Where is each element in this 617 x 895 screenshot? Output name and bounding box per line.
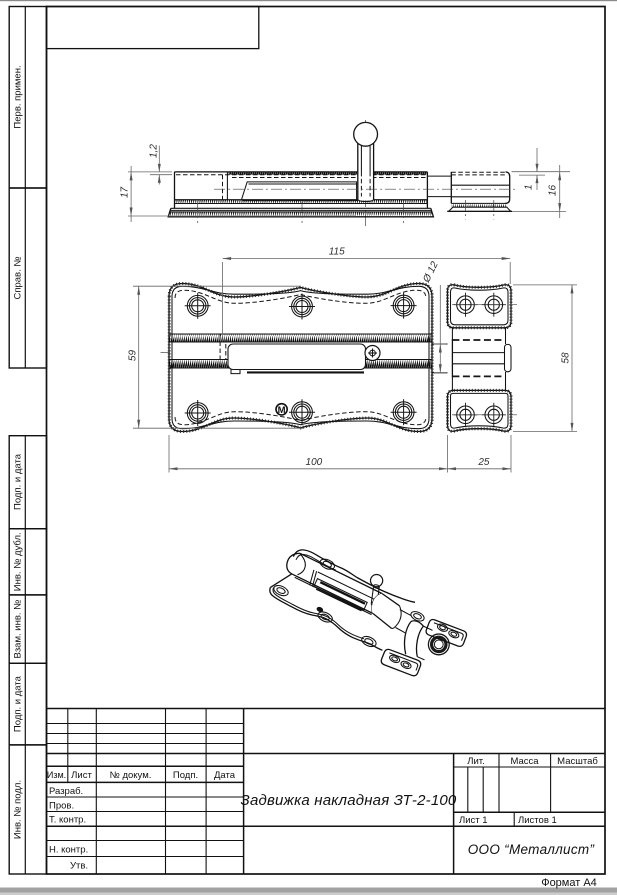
svg-text:№ докум.: № докум.	[110, 770, 152, 781]
svg-text:59: 59	[128, 350, 139, 362]
svg-text:Листов 1: Листов 1	[518, 815, 557, 826]
svg-text:Справ. №: Справ. №	[13, 256, 24, 299]
svg-text:Пров.: Пров.	[49, 800, 74, 811]
svg-text:115: 115	[329, 247, 345, 258]
svg-text:Подп. и дата: Подп. и дата	[13, 675, 24, 732]
svg-text:Подп. и дата: Подп. и дата	[13, 453, 24, 510]
svg-text:16: 16	[548, 184, 559, 196]
svg-text:Дата: Дата	[214, 770, 236, 781]
svg-text:Лист: Лист	[71, 770, 92, 781]
svg-text:Т. контр.: Т. контр.	[49, 815, 86, 826]
svg-text:Лист 1: Лист 1	[459, 815, 488, 826]
svg-text:1: 1	[524, 184, 535, 190]
svg-text:25: 25	[477, 457, 490, 468]
svg-text:Масса: Масса	[510, 756, 539, 767]
svg-text:1,2: 1,2	[149, 144, 160, 158]
svg-text:Инв. № подл.: Инв. № подл.	[13, 780, 24, 839]
svg-text:Взам. инв. №: Взам. инв. №	[13, 600, 24, 659]
svg-text:Разраб.: Разраб.	[49, 786, 83, 797]
svg-text:Формат А4: Формат А4	[541, 877, 597, 889]
svg-text:Масштаб: Масштаб	[557, 756, 598, 767]
svg-text:Утв.: Утв.	[70, 861, 88, 872]
svg-text:M: M	[278, 405, 286, 416]
svg-text:100: 100	[306, 457, 323, 468]
svg-text:Изм.: Изм.	[47, 770, 66, 780]
svg-text:58: 58	[561, 352, 572, 364]
svg-text:Подп.: Подп.	[173, 770, 198, 781]
svg-text:17: 17	[120, 186, 131, 198]
svg-text:Лит.: Лит.	[467, 756, 484, 767]
svg-text:Н. контр.: Н. контр.	[49, 845, 88, 856]
svg-text:Инв. № дубл.: Инв. № дубл.	[13, 532, 24, 591]
svg-text:Задвижка накладная ЗТ-2-100: Задвижка накладная ЗТ-2-100	[241, 792, 457, 809]
svg-text:ООО “Металлист”: ООО “Металлист”	[468, 842, 595, 857]
svg-text:Перв. примен.: Перв. примен.	[13, 65, 24, 128]
